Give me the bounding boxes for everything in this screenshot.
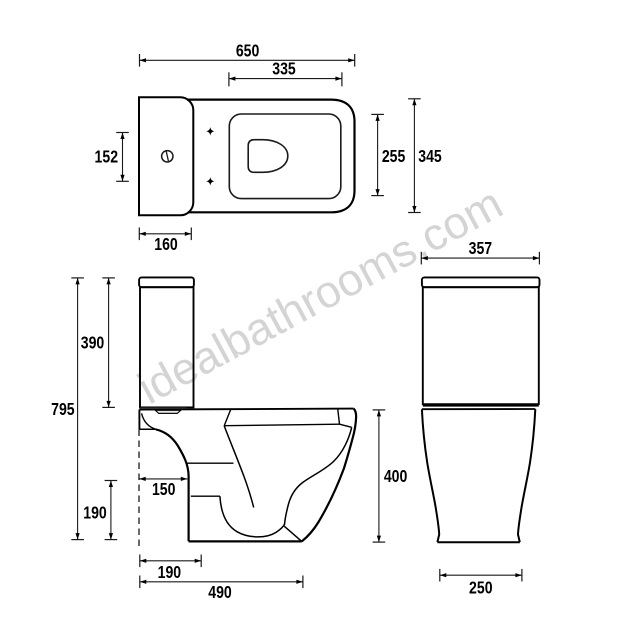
svg-text:345: 345 — [418, 146, 442, 166]
svg-text:490: 490 — [208, 582, 232, 602]
svg-text:152: 152 — [95, 147, 119, 167]
svg-text:795: 795 — [51, 399, 75, 419]
svg-text:335: 335 — [272, 59, 296, 79]
svg-text:160: 160 — [154, 234, 178, 254]
svg-text:390: 390 — [81, 333, 105, 353]
svg-text:250: 250 — [469, 578, 493, 598]
svg-text:400: 400 — [384, 466, 408, 486]
svg-text:190: 190 — [158, 562, 182, 582]
svg-text:255: 255 — [382, 146, 406, 166]
svg-text:150: 150 — [152, 479, 176, 499]
svg-text:190: 190 — [83, 503, 107, 523]
svg-text:357: 357 — [469, 238, 493, 258]
svg-text:650: 650 — [236, 41, 260, 61]
